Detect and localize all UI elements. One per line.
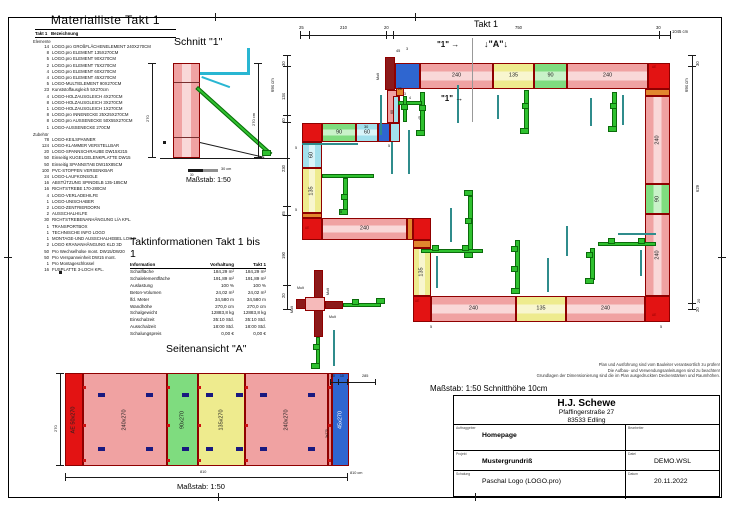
field-label: Schalung: [456, 472, 623, 476]
dimension-line: [174, 137, 200, 138]
coupler-mark: [206, 447, 213, 451]
company-street: Pfaffingerstraße 27: [454, 409, 719, 417]
coupler-mark: [146, 393, 153, 397]
dimension-label: 20: [384, 26, 389, 30]
brace-foot: [608, 126, 617, 132]
dimension-label: 270: [146, 115, 150, 122]
material-list-title: Materialliste Takt 1: [35, 13, 176, 27]
element-size-label: 240: [469, 306, 478, 312]
dimension-label: 5: [340, 211, 342, 215]
item-name: LOGO-AUSSENECKE 270CM: [52, 125, 110, 131]
formwork-element: 60: [302, 142, 322, 168]
title-block-row: Auftraggeber Homepage Bearbeiter: [454, 425, 719, 451]
takt-info-cell: 270,0 cm: [196, 304, 234, 311]
takt-info-title: Taktinformationen Takt 1 bis 1: [130, 236, 266, 260]
field-value: Paschal Logo (LOGO.pro): [482, 478, 623, 485]
takt-info-cell: 35:10 Std.: [234, 317, 266, 324]
dimension-line: [386, 31, 387, 39]
coupler-mark: [260, 393, 267, 397]
side-view-title: Seitenansicht "A": [166, 343, 246, 355]
clamp-mark: [610, 103, 617, 109]
takt-info-cell: 184,29 m²: [234, 269, 266, 276]
dimension-label: 30: [190, 174, 194, 177]
push-pull-prop: [408, 130, 410, 174]
push-pull-prop: [622, 95, 624, 125]
dimension-line: [148, 157, 156, 158]
coupler-mark: [260, 447, 267, 451]
field-label: Projekt: [456, 452, 623, 456]
joint-mark: [198, 459, 201, 462]
clamp-mark: [419, 105, 426, 111]
brace-bar: [421, 249, 483, 253]
formwork-element: [645, 89, 670, 96]
takt-info-cell: Beton-Volumen: [130, 290, 196, 297]
element-size-label: 135x270: [219, 409, 225, 430]
title-block-row: Projekt Mustergrundriß Datei DEMO.WSL: [454, 451, 719, 471]
dimension-label: 3: [404, 93, 406, 96]
dimension-label: AE: [415, 300, 419, 303]
dimension-label: 30: [696, 61, 700, 66]
coupler-mark: [206, 393, 213, 397]
brace-bar: [598, 242, 656, 246]
dimension-line: [300, 35, 670, 36]
formwork-element: 240: [645, 214, 670, 296]
coupler-mark: [236, 447, 243, 451]
brace-foot: [416, 130, 425, 136]
field-auftraggeber: Auftraggeber Homepage: [454, 425, 626, 450]
dimension-label: 629: [696, 185, 700, 192]
element-size-label: 240: [603, 73, 612, 79]
formwork-element: [173, 63, 200, 158]
dimension-label: 1045 cm: [672, 30, 688, 34]
material-list-header: Takt 1 Bezeichnung: [35, 29, 176, 38]
clamp-mark: [511, 246, 518, 252]
dimension-label: 694 cm: [271, 78, 275, 92]
takt-info-cell: Einschalzeit: [130, 317, 196, 324]
coupler-mark: [98, 393, 105, 397]
dimension-label: Mult: [297, 287, 304, 291]
clamp-mark: [522, 103, 529, 109]
field-label: Datum: [628, 472, 717, 476]
takt-info-rows: Schalfläche184,29 m²184,29 m²Schalelemen…: [130, 269, 266, 338]
takt-info-cell: 191,89 m²: [196, 276, 234, 283]
dimension-line: [692, 55, 693, 310]
dimension-label: 25: [282, 211, 286, 216]
formwork-element: [413, 240, 431, 248]
formwork-element: [390, 123, 400, 142]
takt-info-header: Information Vorhaltung Takt 1: [130, 262, 266, 269]
clamp-mark: [401, 104, 408, 110]
takt-info-cell: Schalungspreis: [130, 331, 196, 338]
dimension-label: 10: [340, 375, 344, 378]
field-schalung: Schalung Paschal Logo (LOGO.pro): [454, 471, 626, 499]
dimension-label: 270 cm: [252, 113, 256, 126]
formwork-element: [314, 309, 323, 337]
takt-info-cell: 34,580 m: [234, 297, 266, 304]
scale-and-section-height: Maßstab: 1:50 Schnitthöhe 10cm: [430, 384, 547, 393]
formwork-element: 135: [516, 296, 566, 322]
takt-info-row: Schalfläche184,29 m²184,29 m²: [130, 269, 266, 276]
takt-info-cell: lfd. Meter: [130, 297, 196, 304]
dimension-label: 5: [430, 326, 432, 330]
dimension-label: Mult: [291, 306, 295, 313]
dimension-label: "1" →: [441, 95, 463, 103]
dimension-label: AE: [305, 227, 309, 230]
brace-foot: [464, 252, 473, 258]
dimension-label: 20: [696, 307, 700, 312]
dimension-label: 20: [698, 299, 702, 303]
formwork-element: [302, 213, 322, 218]
clamp-mark: [465, 218, 472, 224]
formwork-element: [395, 63, 420, 89]
dimension-label: 25: [398, 88, 402, 91]
dimension-line: [393, 31, 394, 39]
item-quantity: 1: [35, 125, 52, 131]
takt-info-cell: Ausschalzeit: [130, 324, 196, 331]
brace-bar: [420, 92, 425, 132]
clamp-mark: [341, 194, 348, 200]
push-pull-prop: [333, 330, 335, 366]
dimension-line: [300, 31, 301, 39]
dimension-label: 190: [282, 252, 286, 259]
brace-foot: [511, 288, 520, 294]
joint-mark: [328, 424, 331, 427]
dimension-line: [472, 38, 473, 122]
dimension-label: 3: [406, 48, 408, 52]
section-view-scale: Maßstab: 1:50: [186, 177, 231, 184]
joint-mark: [83, 386, 86, 389]
takt-info-cell: Schalfläche: [130, 269, 196, 276]
formwork-element: [413, 218, 431, 240]
dimension-label: 5: [660, 326, 662, 330]
field-projekt: Projekt Mustergrundriß: [454, 451, 626, 470]
takt-info-cell: 35:10 Std.: [196, 317, 234, 324]
dimension-line: [56, 373, 64, 374]
dimension-label: 750: [515, 26, 522, 30]
dimension-line: [330, 382, 376, 383]
takt-info-cell: 18:00 Std.: [196, 324, 234, 331]
element-size-label: 240x270: [122, 409, 128, 430]
clamp-mark: [638, 238, 645, 244]
formwork-element: 90: [322, 123, 356, 142]
dimension-line: [415, 13, 416, 21]
push-pull-prop: [457, 85, 459, 123]
material-list-header-qty: Takt 1: [35, 31, 51, 36]
clamp-mark: [352, 299, 359, 305]
joint-mark: [328, 386, 331, 389]
clamp-mark: [313, 344, 320, 350]
formwork-element: [645, 296, 670, 322]
dimension-line: [347, 379, 348, 385]
element-size-label: 240: [655, 250, 661, 259]
element-size-label: 135: [309, 186, 315, 195]
side-view-scale: Maßstab: 1:50: [177, 482, 225, 491]
dimension-label: 30: [656, 26, 661, 30]
dimension-line: [174, 82, 200, 83]
joint-mark: [167, 459, 170, 462]
dimension-line: [4, 257, 12, 258]
dimension-line: [375, 379, 376, 385]
joint-mark: [245, 424, 248, 427]
joint-mark: [198, 386, 201, 389]
dimension-line: [287, 55, 288, 310]
field-datei: Datei DEMO.WSL: [626, 451, 719, 470]
formwork-element: 90: [534, 63, 567, 89]
clamp-mark: [432, 245, 439, 251]
takt-info-cell: 270,0 cm: [234, 304, 266, 311]
dimension-label: 20: [331, 375, 335, 378]
dimension-line: [475, 493, 476, 501]
item-quantity: 16: [35, 267, 52, 273]
formwork-element: [302, 123, 322, 142]
formwork-element: 135: [493, 63, 534, 89]
dimension-line: [218, 493, 219, 501]
dimension-label: 4: [409, 97, 411, 100]
clamp-mark: [608, 238, 615, 244]
title-block-row: Schalung Paschal Logo (LOGO.pro) Datum 2…: [454, 471, 719, 499]
material-item-row: 1LOGO-AUSSENECKE 270CM: [35, 125, 176, 131]
takt-info-cell: 12883,8 kg: [196, 310, 234, 317]
formwork-element: 240: [645, 96, 670, 184]
dimension-line: [56, 465, 64, 466]
push-pull-prop: [547, 258, 549, 292]
field-value: DEMO.WSL: [654, 458, 717, 465]
dimension-line: [203, 169, 218, 172]
dimension-label: 5: [295, 147, 297, 151]
dimension-label: 20: [282, 293, 286, 298]
brace-bar: [612, 92, 617, 128]
company-name: H.J. Schewe: [454, 396, 719, 409]
section-view-title: Schnitt "1": [174, 36, 222, 48]
brace-bar: [316, 337, 320, 365]
formwork-element: 240: [322, 218, 407, 240]
formwork-element: 240: [566, 296, 645, 322]
dimension-line: [718, 257, 726, 258]
formwork-element: [314, 270, 323, 299]
formwork-element: 90x270: [167, 373, 198, 466]
element-size-label: 240: [452, 73, 461, 79]
push-pull-prop: [590, 98, 592, 126]
dimension-line: [670, 31, 671, 39]
field-value: Homepage: [482, 432, 623, 439]
takt-info-cell: Schalelementfläche: [130, 276, 196, 283]
formwork-element: AE 50x270: [65, 373, 83, 466]
disclaimer-notes: Plan und Ausführung sind vom Bauleiter v…: [420, 362, 720, 379]
formwork-element: 135: [302, 168, 322, 213]
joint-mark: [167, 386, 170, 389]
takt-info-row: Ausschalzeit18:00 Std.18:00 Std.: [130, 324, 266, 331]
dimension-label: 60: [391, 110, 395, 114]
element-size-label: 90: [547, 73, 553, 79]
push-pull-prop: [640, 250, 642, 276]
joint-mark: [328, 459, 331, 462]
element-size-label: 45x270: [338, 410, 344, 428]
dimension-line: [59, 271, 62, 274]
dimension-line: [215, 13, 216, 21]
takt-info-row: Auslastung100 %100 %: [130, 283, 266, 290]
dimension-line: [309, 31, 310, 39]
takt-info-cell: 0,00 €: [234, 331, 266, 338]
takt-info-row: Beton-Volumen24,02 m³24,02 m³: [130, 290, 266, 297]
element-size-label: 240: [601, 306, 610, 312]
coupler-mark: [308, 393, 315, 397]
working-platform: [200, 72, 250, 75]
dimension-label: 230: [282, 165, 286, 172]
takt-info-row: Schalungspreis0,00 €0,00 €: [130, 331, 266, 338]
push-pull-prop: [436, 256, 438, 288]
element-size-label: AE 50x270: [71, 406, 77, 433]
material-list: Materialliste Takt 1 Takt 1 Bezeichnung …: [35, 13, 176, 273]
coupler-mark: [146, 447, 153, 451]
formwork-element: [305, 297, 325, 311]
dimension-line: [163, 141, 166, 144]
takt-info-col-vorhaltung: Vorhaltung: [196, 262, 234, 267]
joint-mark: [198, 424, 201, 427]
dimension-line: [283, 206, 291, 207]
element-size-label: 60: [309, 152, 315, 158]
dimension-label: 210: [340, 26, 347, 30]
takt-info-row: Schalelementfläche191,89 m²191,89 m²: [130, 276, 266, 283]
formwork-element: [325, 301, 343, 309]
element-size-label: 240: [360, 226, 369, 232]
takt-info-row: Wandhöhe270,0 cm270,0 cm: [130, 304, 266, 311]
clamp-mark: [462, 245, 469, 251]
disclaimer-line: Grundlagen der Dimensionierung sind die …: [420, 373, 720, 379]
dimension-label: AE: [652, 66, 656, 69]
dimension-line: [330, 379, 331, 385]
takt-info-row: Einschalzeit35:10 Std.35:10 Std.: [130, 317, 266, 324]
takt-info-col-information: Information: [130, 262, 196, 267]
joint-mark: [83, 459, 86, 462]
dimension-label: 30 cm: [221, 168, 231, 172]
field-value: 20.11.2022: [654, 478, 717, 485]
formwork-element: 45x270: [332, 373, 349, 466]
dimension-line: [152, 63, 153, 158]
takt-info-cell: 12883,8 kg: [234, 310, 266, 317]
dimension-label: 285: [362, 375, 368, 379]
formwork-element: 240x270: [245, 373, 328, 466]
element-size-label: 240x270: [284, 409, 290, 430]
dimension-line: [688, 55, 696, 56]
takt-info-row: lfd. Meter34,580 m34,580 m: [130, 297, 266, 304]
clamp-mark: [586, 252, 593, 258]
dimension-label: 270: [54, 425, 58, 432]
joint-mark: [245, 459, 248, 462]
title-block-company: H.J. Schewe Pfaffingerstraße 27 83533 Ed…: [454, 396, 719, 425]
element-size-label: 135: [536, 306, 545, 312]
formwork-element: 90: [645, 184, 670, 214]
dimension-line: [60, 373, 61, 466]
takt-info-col-takt1: Takt 1: [234, 262, 266, 267]
dimension-line: [688, 66, 696, 67]
dimension-line: [338, 379, 339, 385]
dimension-line: [188, 169, 203, 172]
dimension-label: 5: [295, 209, 297, 213]
coupler-mark: [182, 393, 189, 397]
dimension-line: [254, 63, 262, 64]
push-pull-prop: [380, 95, 382, 135]
dimension-line: [148, 63, 156, 64]
dimension-label: 30: [364, 126, 368, 130]
dimension-line: [347, 473, 348, 481]
dimension-label: 5: [388, 145, 390, 149]
dimension-label: 20: [282, 118, 286, 123]
material-list-header-name: Bezeichnung: [51, 31, 78, 36]
brace-bar: [524, 90, 529, 130]
dimension-label: 134: [282, 93, 286, 100]
takt-info-cell: 191,89 m²: [234, 276, 266, 283]
element-size-label: 135: [509, 73, 518, 79]
takt-info-cell: 100 %: [196, 283, 234, 290]
brace-foot: [376, 298, 385, 304]
dimension-line: [283, 285, 291, 286]
dimension-label: 810: [200, 471, 206, 475]
dimension-line: [258, 63, 259, 158]
dimension-label: 3x270: [326, 429, 329, 438]
takt-info-cell: 24,02 m³: [196, 290, 234, 297]
clamp-mark: [511, 266, 518, 272]
takt-info-cell: Schalgewicht: [130, 310, 196, 317]
push-pull-prop: [302, 143, 358, 145]
dimension-label: Mult: [329, 316, 336, 320]
takt-info: Taktinformationen Takt 1 bis 1 Informati…: [130, 236, 266, 338]
joint-mark: [167, 424, 170, 427]
push-pull-prop: [450, 208, 452, 242]
takt-info-row: Schalgewicht12883,8 kg12883,8 kg: [130, 310, 266, 317]
dimension-line: [659, 31, 660, 39]
field-label: Datei: [628, 452, 717, 456]
dimension-line: [688, 303, 696, 304]
working-platform: [247, 48, 250, 75]
brace-bar: [322, 174, 374, 178]
formwork-element: 240: [567, 63, 648, 89]
coupler-mark: [236, 393, 243, 397]
field-bearbeiter: Bearbeiter: [626, 425, 719, 450]
push-pull-prop: [566, 226, 568, 256]
element-size-label: 90: [655, 196, 661, 202]
dimension-label: "1" →: [437, 41, 459, 49]
dimension-line: [283, 115, 291, 116]
dimension-label: 810 cm: [350, 472, 362, 476]
element-size-label: 135: [419, 267, 425, 276]
takt-info-cell: Auslastung: [130, 283, 196, 290]
formwork-element: 240: [431, 296, 516, 322]
field-datum: Datum 20.11.2022: [626, 471, 719, 499]
coupler-mark: [98, 447, 105, 451]
dimension-label: 30: [282, 61, 286, 66]
brace-foot: [520, 128, 529, 134]
dimension-line: [160, 158, 290, 159]
plan-sheet: Materialliste Takt 1 Takt 1 Bezeichnung …: [0, 0, 730, 517]
title-block: H.J. Schewe Pfaffingerstraße 27 83533 Ed…: [453, 395, 720, 497]
formwork-element: 135: [413, 248, 431, 296]
element-size-label: 240: [655, 135, 661, 144]
joint-mark: [83, 424, 86, 427]
field-value: Mustergrundriß: [482, 458, 623, 465]
element-size-label: 90x270: [180, 410, 186, 428]
takt-info-cell: 34,580 m: [196, 297, 234, 304]
coupler-mark: [182, 447, 189, 451]
dimension-label: AE: [652, 314, 656, 317]
field-label: Bearbeiter: [628, 426, 717, 430]
field-label: Auftraggeber: [456, 426, 623, 430]
plan-view-title: Takt 1: [474, 19, 498, 29]
dimension-line: [65, 473, 66, 481]
dimension-label: Mult: [327, 288, 331, 295]
takt-info-cell: 18:00 Std.: [234, 324, 266, 331]
joint-mark: [245, 386, 248, 389]
dimension-line: [65, 477, 348, 478]
